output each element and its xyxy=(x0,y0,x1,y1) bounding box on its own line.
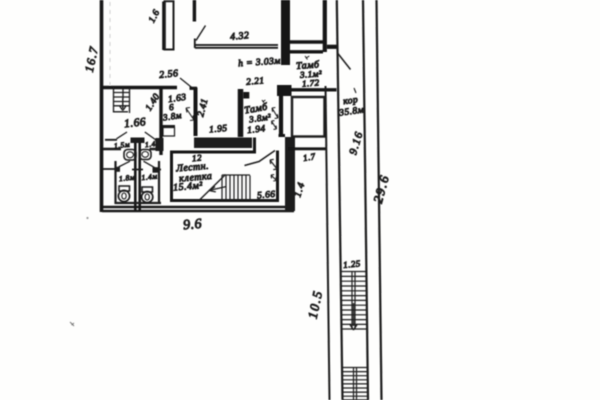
svg-text:1.94: 1.94 xyxy=(247,124,266,136)
svg-text:1.25: 1.25 xyxy=(343,258,362,270)
svg-text:1.72: 1.72 xyxy=(302,77,320,88)
svg-text:1.8м: 1.8м xyxy=(119,173,136,184)
svg-text:1.4м: 1.4м xyxy=(141,172,158,183)
svg-text:2.21: 2.21 xyxy=(246,76,265,88)
svg-text:9.6: 9.6 xyxy=(183,217,203,234)
svg-text:1.66: 1.66 xyxy=(124,116,147,130)
svg-text:1.95: 1.95 xyxy=(209,124,228,136)
svg-text:4.32: 4.32 xyxy=(230,30,250,43)
svg-text:1.4м: 1.4м xyxy=(145,139,162,150)
svg-text:2.56: 2.56 xyxy=(159,68,179,81)
svg-text:1.5м: 1.5м xyxy=(114,140,131,151)
svg-text:5.66: 5.66 xyxy=(257,190,276,202)
